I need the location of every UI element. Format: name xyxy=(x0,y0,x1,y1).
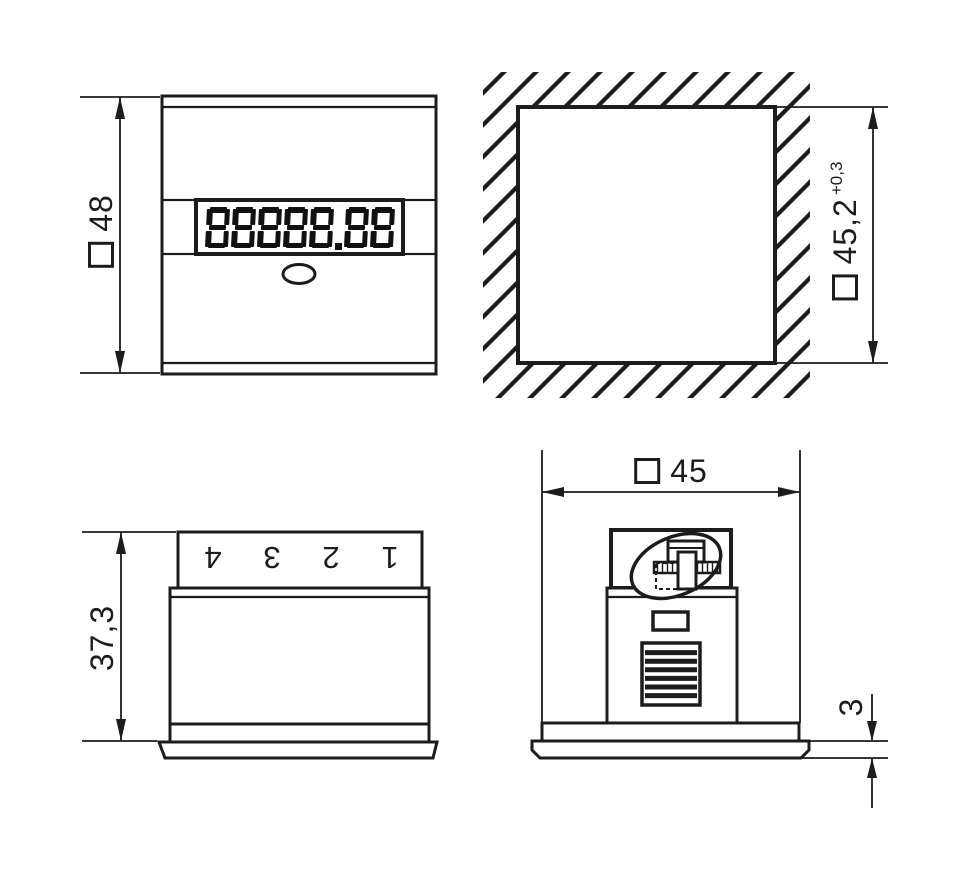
terminal-label-2: 2 xyxy=(322,539,339,575)
bezel-dim-arrow-up xyxy=(867,758,877,778)
terminal-label-4: 4 xyxy=(204,539,221,575)
cutout-dim-arrow-up xyxy=(868,107,878,129)
rear-width-dimension-label: 45 xyxy=(634,455,708,487)
hatch-ring xyxy=(483,72,810,398)
bezel-thickness-dimension-value: 3 xyxy=(835,698,867,717)
rear-window xyxy=(653,612,688,630)
square-symbol xyxy=(634,458,660,484)
side-height-dimension-value: 37,3 xyxy=(86,605,118,671)
lcd-digit xyxy=(343,207,368,248)
terminal-label-1: 1 xyxy=(381,539,398,575)
lcd-display xyxy=(199,203,400,251)
rear-dim-arrow-left xyxy=(542,487,564,497)
terminal-label-3: 3 xyxy=(263,539,280,575)
cutout-dim-arrow-down xyxy=(868,341,878,363)
cutout-dimension-value: 45,2 xyxy=(829,198,861,264)
square-symbol xyxy=(832,274,858,300)
lcd-digit xyxy=(204,207,229,248)
side-plate xyxy=(170,724,429,742)
cutout-square xyxy=(518,107,775,363)
rear-view xyxy=(532,450,888,808)
cutout-dimension-tolerance: +0,3 xyxy=(828,162,845,196)
lcd-digit xyxy=(282,207,307,248)
cutout-dimension-label: 45,2 +0,3 xyxy=(829,162,861,301)
side-bezel xyxy=(159,742,437,758)
square-symbol xyxy=(88,242,114,268)
lcd-digit xyxy=(369,207,394,248)
rear-bezel xyxy=(532,741,809,758)
front-dim-arrow-down xyxy=(115,351,125,373)
side-body xyxy=(170,588,429,724)
rear-width-dimension-value: 45 xyxy=(670,455,708,487)
lcd-digit xyxy=(256,207,281,248)
front-height-dimension-value: 48 xyxy=(85,194,117,232)
connector-plug-slot xyxy=(678,552,696,589)
front-height-dimension-label: 48 xyxy=(85,194,117,268)
front-button xyxy=(283,265,315,284)
rear-dim-arrow-right xyxy=(778,487,800,497)
side-height-dimension-label: 37,3 xyxy=(86,605,118,671)
front-dim-arrow-up xyxy=(115,97,125,119)
lcd-decimal-point xyxy=(335,243,342,250)
bezel-dim-arrow-down xyxy=(867,721,877,741)
side-dim-arrow-up xyxy=(116,532,126,554)
bezel-thickness-dimension-label: 3 xyxy=(835,698,867,717)
rear-plate xyxy=(542,723,799,741)
side-dim-arrow-down xyxy=(116,719,126,741)
drawing-linework xyxy=(0,0,970,882)
technical-drawing-page: { "front_view": { "display_value": "8888… xyxy=(0,0,970,882)
lcd-digit xyxy=(308,207,333,248)
lcd-digit xyxy=(230,207,255,248)
